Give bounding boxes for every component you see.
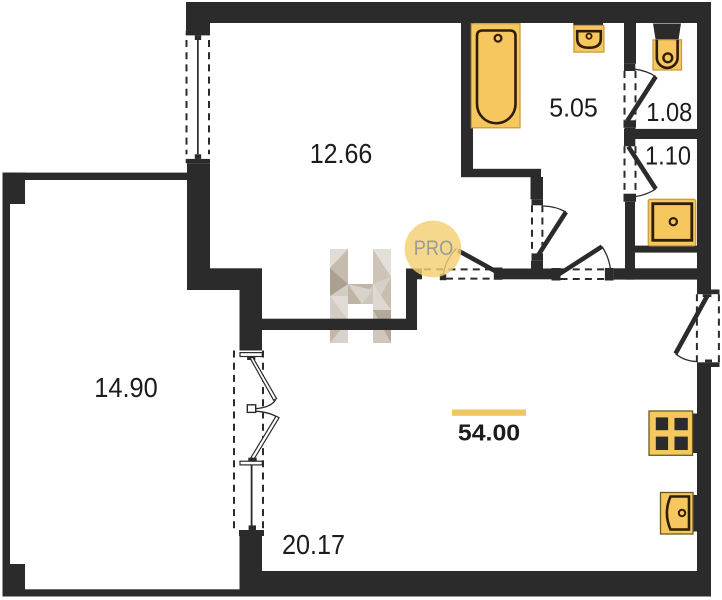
svg-text:14.90: 14.90: [94, 372, 158, 403]
svg-text:1.10: 1.10: [645, 142, 691, 170]
svg-text:PRO: PRO: [414, 237, 454, 260]
svg-text:5.05: 5.05: [549, 93, 598, 123]
svg-text:54.00: 54.00: [458, 420, 520, 446]
svg-text:20.17: 20.17: [282, 529, 345, 560]
svg-text:12.66: 12.66: [310, 138, 373, 169]
svg-text:1.08: 1.08: [646, 99, 692, 127]
